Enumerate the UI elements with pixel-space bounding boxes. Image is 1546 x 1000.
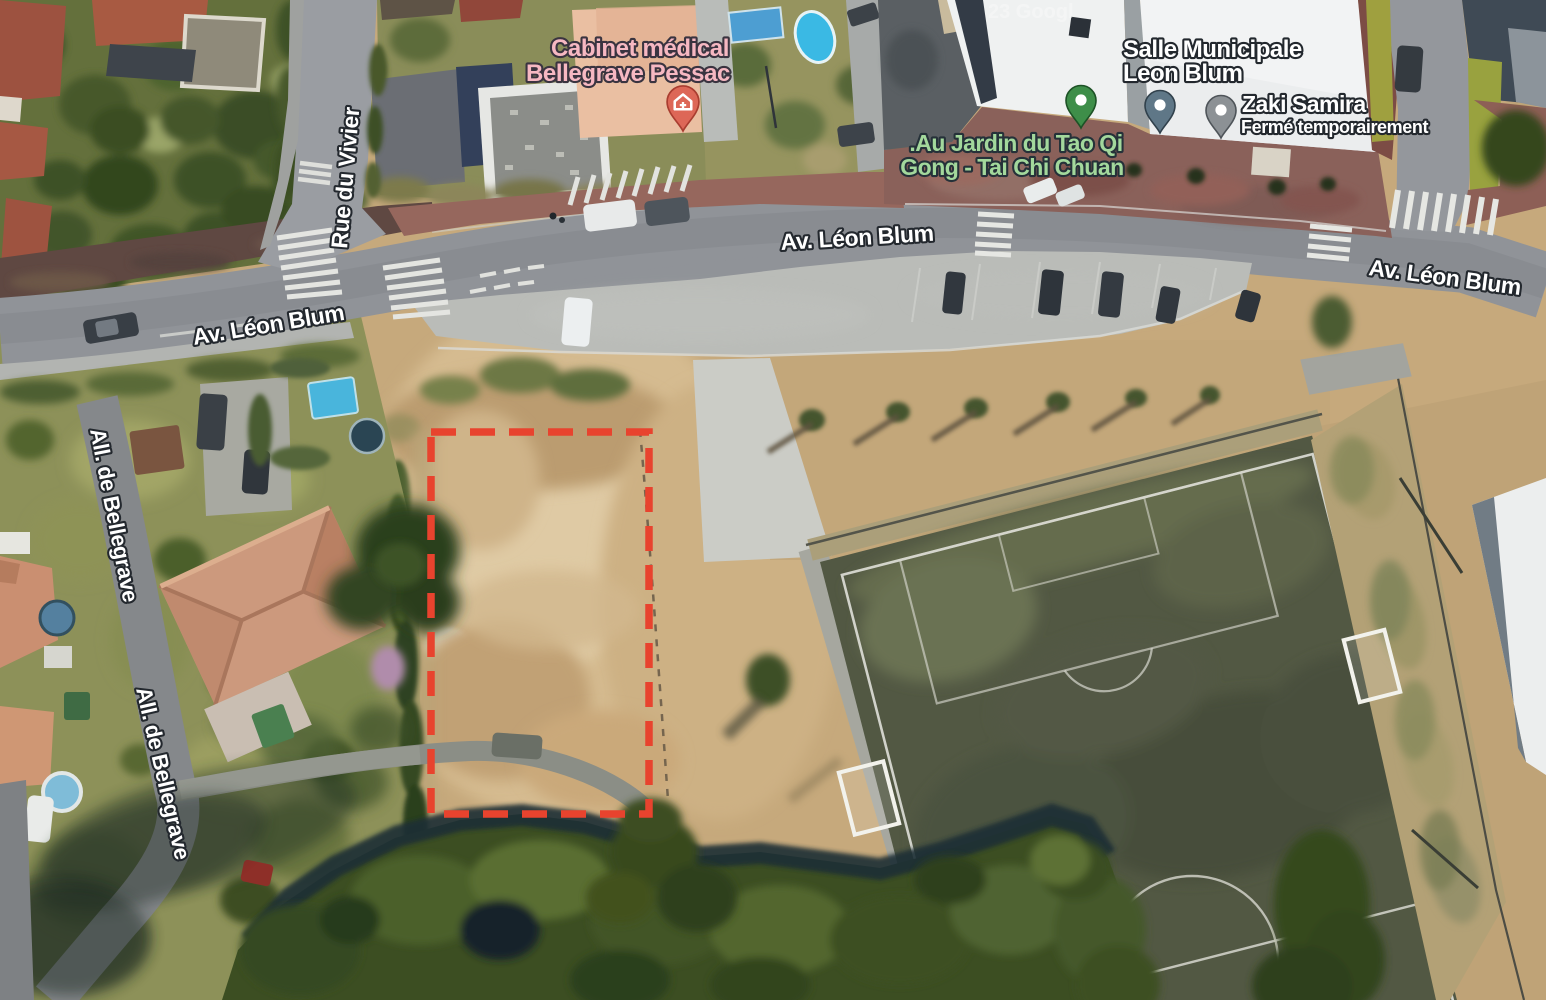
svg-text:.Au Jardin du Tao Qi: .Au Jardin du Tao Qi	[909, 130, 1122, 156]
svg-text:Salle Municipale: Salle Municipale	[1123, 36, 1302, 63]
svg-text:23 Googl: 23 Googl	[988, 1, 1074, 23]
svg-text:Gong - Tai Chi Chuan: Gong - Tai Chi Chuan	[900, 154, 1123, 180]
svg-text:Zaki Samira: Zaki Samira	[1242, 91, 1366, 117]
svg-text:Bellegrave Pessac: Bellegrave Pessac	[526, 60, 730, 87]
svg-text:Leon Blum: Leon Blum	[1123, 60, 1243, 87]
svg-text:Cabinet médical: Cabinet médical	[551, 35, 729, 62]
svg-text:Fermé temporairement: Fermé temporairement	[1241, 117, 1428, 137]
